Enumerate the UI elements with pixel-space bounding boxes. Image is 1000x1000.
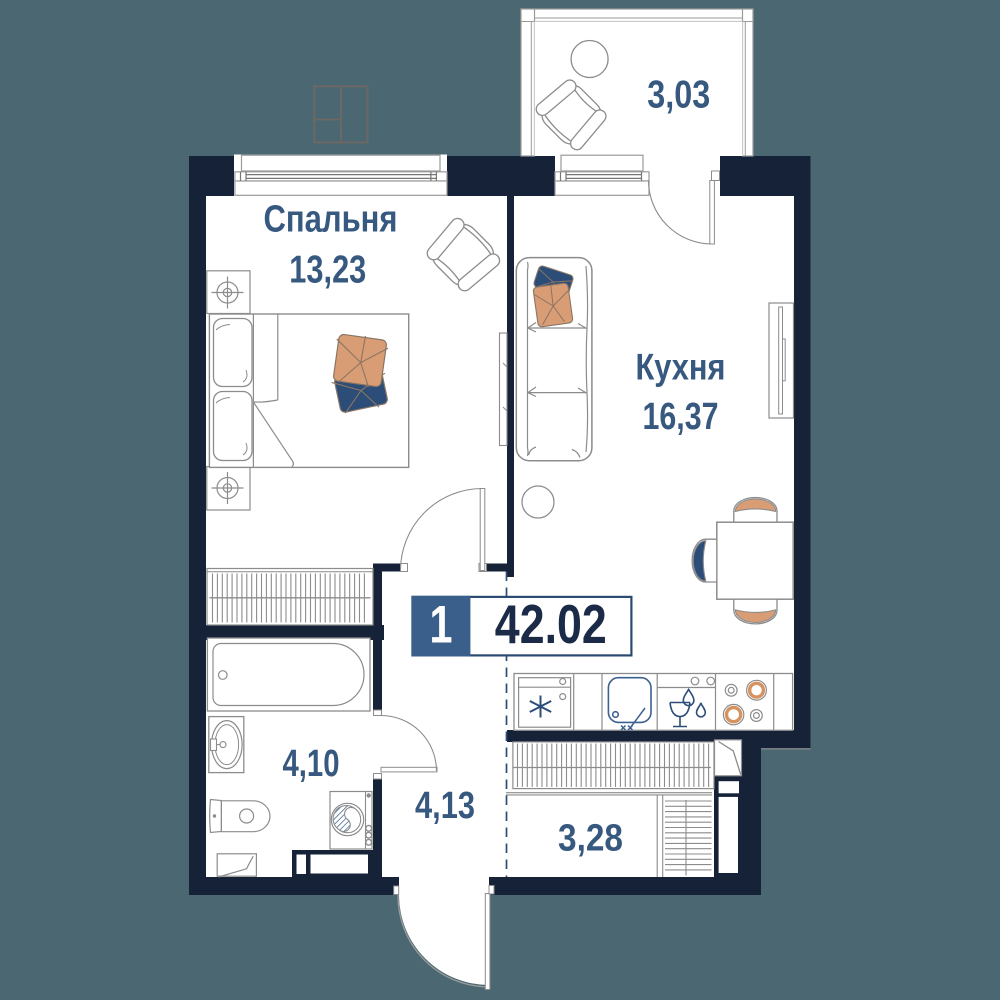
svg-text:13,23: 13,23 — [289, 249, 366, 292]
svg-text:3,03: 3,03 — [647, 74, 710, 117]
svg-text:1: 1 — [430, 596, 453, 655]
svg-text:3,28: 3,28 — [558, 818, 623, 860]
svg-text:42.02: 42.02 — [495, 593, 607, 655]
svg-text:16,37: 16,37 — [643, 396, 719, 438]
svg-text:4,13: 4,13 — [415, 785, 475, 827]
svg-text:4,10: 4,10 — [283, 743, 340, 785]
svg-text:Кухня: Кухня — [636, 347, 726, 388]
svg-text:Спальня: Спальня — [264, 199, 398, 241]
